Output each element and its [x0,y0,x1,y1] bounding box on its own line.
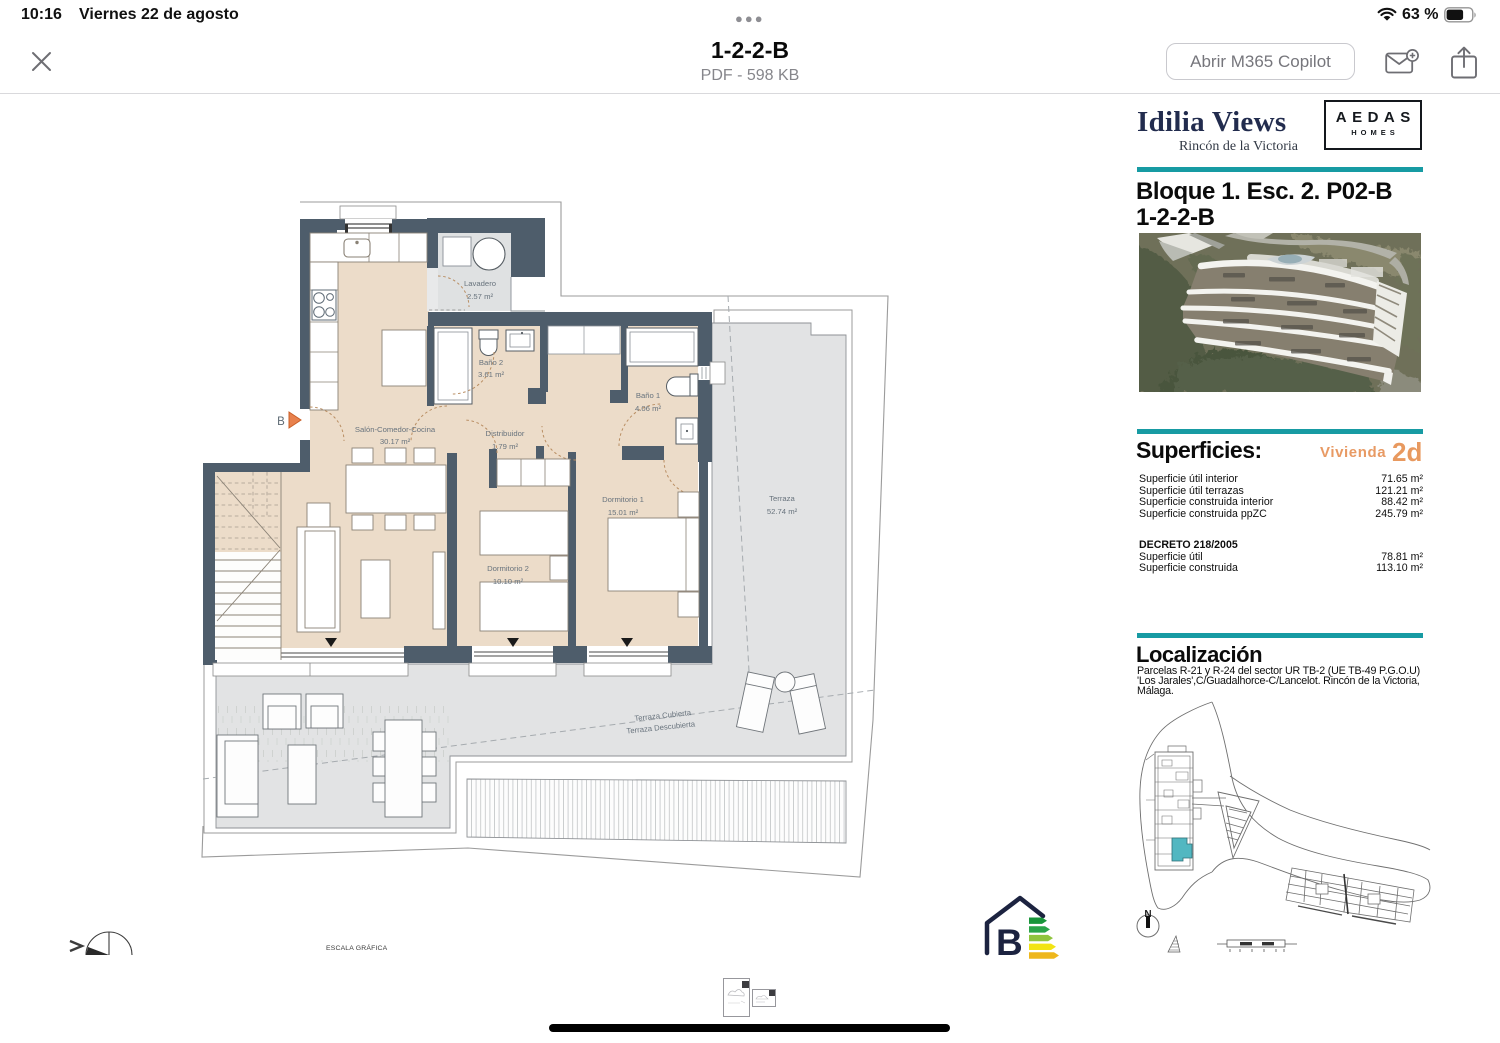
svg-text:4.06 m²: 4.06 m² [635,404,662,413]
svg-text:B: B [996,922,1023,963]
svg-text:Baño 2: Baño 2 [479,358,503,367]
svg-text:Distribuidor: Distribuidor [486,429,525,438]
svg-text:B: B [277,416,285,428]
svg-text:ESCALA GRÁFICA: ESCALA GRÁFICA [326,943,388,952]
svg-text:Baño 1: Baño 1 [636,391,660,400]
svg-text:Dormitorio 2: Dormitorio 2 [487,564,529,573]
svg-text:30.17 m²: 30.17 m² [380,437,411,446]
svg-text:15.01 m²: 15.01 m² [608,508,639,517]
svg-text:Salón-Comedor-Cocina: Salón-Comedor-Cocina [355,425,436,434]
svg-text:2.57 m²: 2.57 m² [467,292,494,301]
svg-text:1.79 m²: 1.79 m² [492,442,519,451]
svg-text:3.61 m²: 3.61 m² [478,370,505,379]
svg-text:52.74 m²: 52.74 m² [767,507,798,516]
svg-text:Dormitorio 1: Dormitorio 1 [602,495,644,504]
svg-text:10.10 m²: 10.10 m² [493,577,524,586]
svg-text:Lavadero: Lavadero [464,279,496,288]
svg-text:Terraza: Terraza [769,494,795,503]
